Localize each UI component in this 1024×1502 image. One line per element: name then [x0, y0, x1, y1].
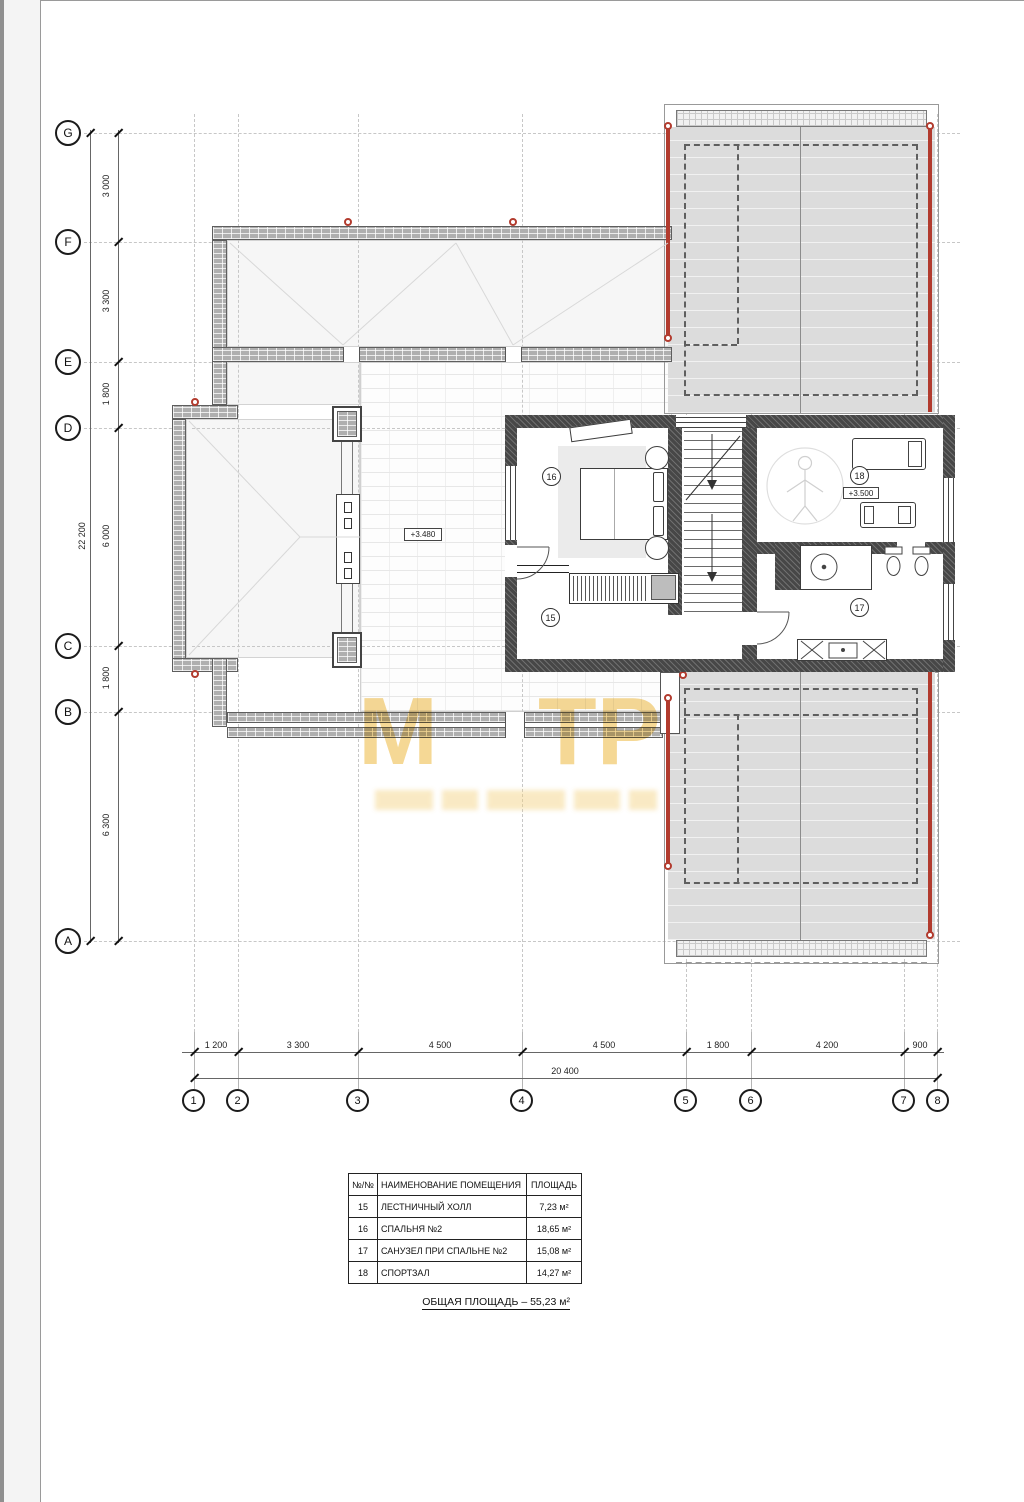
axis-col-2: 2 [226, 1089, 249, 1112]
axis-row-C: C [55, 633, 81, 659]
nightstand [645, 446, 669, 470]
total-area-value: ОБЩАЯ ПЛОЩАДЬ – 55,23 м² [422, 1296, 570, 1310]
watermark-blur-block [375, 790, 433, 810]
wall-stair-right-b [742, 645, 757, 659]
frame-line-top [40, 0, 1024, 1]
header-number: №/№ [349, 1174, 378, 1196]
wall-stair-right-a [742, 428, 757, 612]
roof-ridge-upper [800, 127, 801, 413]
dim-value: 4 500 [593, 1040, 616, 1050]
panel-cell [344, 552, 352, 563]
downspout-marker [664, 334, 672, 342]
panel-cell [344, 502, 352, 513]
wall-bottom [505, 659, 955, 672]
window-top [676, 415, 746, 428]
floor-plan-sheet: 16 15 18 17 +3.480 +3.500 МТР 3 000 3 30… [0, 0, 1024, 1502]
downspout-marker [664, 694, 672, 702]
axis-label: D [64, 421, 73, 435]
roof-dashed-wall [737, 144, 739, 344]
dim-bottom-1: 1 200 [186, 1040, 246, 1050]
dim-bottom-5: 1 800 [688, 1040, 748, 1050]
watermark-blur-block [574, 790, 620, 810]
dim-line-bottom-segments [182, 1052, 944, 1053]
downspout-marker [191, 398, 199, 406]
watermark-blur-block [487, 790, 565, 810]
axis-col-3: 3 [346, 1089, 369, 1112]
gutter-bar [666, 128, 670, 338]
eaves-dash-row [676, 962, 927, 964]
dim-value: 3 300 [101, 290, 111, 313]
dim-bottom-4: 4 500 [574, 1040, 634, 1050]
axis-row-B: B [55, 699, 81, 725]
axis-label: 8 [934, 1095, 940, 1107]
page-margin [4, 0, 40, 1502]
axis-col-6: 6 [739, 1089, 762, 1112]
gutter-bar [928, 128, 932, 412]
axis-label: B [64, 705, 72, 719]
roof-dashed-wall-outline [684, 144, 918, 396]
eaves-band-top [676, 110, 927, 127]
table-row: 17 САНУЗЕЛ ПРИ СПАЛЬНЕ №2 15,08 м² [349, 1240, 582, 1262]
pier-connector-lower [341, 584, 353, 632]
ext-line [358, 1032, 359, 1089]
cell-number: 16 [349, 1218, 378, 1240]
shower-enclosure [800, 545, 872, 590]
grid-col-2-overlay [238, 240, 239, 712]
wall-band-left-lower [212, 658, 227, 727]
axis-label: 1 [190, 1095, 196, 1107]
room-number-hall: 15 [541, 608, 560, 627]
wall-gym-bath-b [925, 542, 943, 554]
roof-plane-bay [186, 419, 360, 658]
axis-label: 4 [518, 1095, 524, 1107]
bike-wheel [898, 506, 911, 524]
roof-ridge-lower [800, 672, 801, 940]
wall-band-row-e [212, 347, 672, 362]
window-bedroom [505, 466, 517, 540]
panel-cell [344, 518, 352, 529]
eaves-band-bottom [676, 940, 927, 957]
dim-value: 3 000 [101, 175, 111, 198]
window-bath [943, 584, 955, 640]
downspout-marker [191, 670, 199, 678]
room-number-label: 18 [854, 471, 864, 481]
bay-wall-left [172, 419, 186, 672]
bike-seat [864, 506, 874, 524]
watermark-letters: ТР [538, 678, 661, 785]
level-mark-gym: +3.500 [843, 487, 879, 499]
chimney-box [660, 672, 680, 734]
axis-label: A [64, 934, 72, 948]
dim-left-2: 3 300 [101, 266, 111, 336]
vanity [797, 639, 887, 661]
dim-value: 1 800 [101, 667, 111, 690]
dim-bottom-total: 20 400 [535, 1066, 595, 1076]
axis-col-1: 1 [182, 1089, 205, 1112]
wardrobe-cabinet [651, 575, 676, 600]
room-number-label: 17 [854, 603, 864, 613]
dim-bottom-3: 4 500 [410, 1040, 470, 1050]
axis-row-G: G [55, 120, 81, 146]
bed-pillow [653, 506, 664, 536]
header-room-name: НАИМЕНОВАНИЕ ПОМЕЩЕНИЯ [378, 1174, 527, 1196]
dim-value: 22 200 [77, 522, 87, 550]
axis-col-5: 5 [674, 1089, 697, 1112]
room-number-bedroom: 16 [542, 467, 561, 486]
room-number-gym: 18 [850, 466, 869, 485]
dim-value: 1 200 [205, 1040, 228, 1050]
axis-row-E: E [55, 349, 81, 375]
dim-left-4: 6 000 [101, 501, 111, 571]
cell-number: 17 [349, 1240, 378, 1262]
ext-line [751, 1032, 752, 1089]
cell-area: 14,27 м² [527, 1262, 582, 1284]
room-number-bath: 17 [850, 598, 869, 617]
level-value: +3.480 [411, 530, 436, 539]
level-value: +3.500 [849, 489, 874, 498]
roof-plane-upper-ext [227, 362, 360, 405]
bay-wall-top [172, 405, 238, 419]
header-area: ПЛОЩАДЬ [527, 1174, 582, 1196]
dim-left-6: 6 300 [101, 790, 111, 860]
downspout-marker [926, 122, 934, 130]
gutter-bar [928, 672, 932, 935]
cell-room-name: СПАЛЬНЯ №2 [378, 1218, 527, 1240]
axis-label: E [64, 355, 72, 369]
bay-wall-bottom [172, 658, 238, 672]
bed-pillow [653, 472, 664, 502]
pier-box-bottom-core [337, 637, 357, 663]
dim-bottom-7: 900 [900, 1040, 940, 1050]
watermark-subline [375, 790, 657, 810]
frame-line-left [40, 0, 41, 1502]
dim-left-total: 22 200 [77, 501, 87, 571]
level-mark-terrace: +3.480 [404, 528, 442, 541]
dim-left-5: 1 800 [101, 643, 111, 713]
pier-gap [505, 347, 522, 362]
pier-box-top-core [337, 411, 357, 437]
axis-label: 2 [234, 1095, 240, 1107]
axis-label: G [63, 126, 72, 140]
wall-hall-bedroom [517, 565, 569, 573]
cell-number: 15 [349, 1196, 378, 1218]
wardrobe-hangers [573, 576, 649, 601]
wall-band-top [212, 226, 672, 240]
axis-col-4: 4 [510, 1089, 533, 1112]
watermark-blur-block [442, 790, 478, 810]
downspout-marker [664, 122, 672, 130]
door-opening-hall [505, 545, 517, 577]
dim-value: 6 000 [101, 525, 111, 548]
axis-label: C [64, 639, 73, 653]
room-number-label: 15 [545, 613, 555, 623]
watermark-letter: М [358, 678, 438, 785]
cell-area: 7,23 м² [527, 1196, 582, 1218]
cell-room-name: САНУЗЕЛ ПРИ СПАЛЬНЕ №2 [378, 1240, 527, 1262]
axis-label: 7 [900, 1095, 906, 1107]
cell-area: 15,08 м² [527, 1240, 582, 1262]
dim-value: 1 800 [101, 383, 111, 406]
nightstand [645, 536, 669, 560]
dim-line-left-total [90, 130, 91, 943]
dim-bottom-6: 4 200 [797, 1040, 857, 1050]
total-area-note: ОБЩАЯ ПЛОЩАДЬ – 55,23 м² [348, 1296, 570, 1308]
axis-col-8: 8 [926, 1089, 949, 1112]
dim-value: 4 500 [429, 1040, 452, 1050]
roof-plane-upper [227, 240, 672, 347]
dim-value: 3 300 [287, 1040, 310, 1050]
axis-label: 6 [747, 1095, 753, 1107]
watermark-logo: МТР [358, 684, 661, 780]
dim-value: 1 800 [707, 1040, 730, 1050]
pier-gap [343, 347, 360, 362]
axis-label: F [64, 235, 71, 249]
dim-value: 20 400 [551, 1066, 579, 1076]
bed-blanket-line [614, 469, 615, 539]
dim-bottom-2: 3 300 [268, 1040, 328, 1050]
room-legend-table: №/№ НАИМЕНОВАНИЕ ПОМЕЩЕНИЯ ПЛОЩАДЬ 15 ЛЕ… [348, 1173, 582, 1284]
gutter-bar [666, 700, 670, 866]
ext-line [686, 1032, 687, 1089]
table-header-row: №/№ НАИМЕНОВАНИЕ ПОМЕЩЕНИЯ ПЛОЩАДЬ [349, 1174, 582, 1196]
dim-left-1: 3 000 [101, 151, 111, 221]
wall-band-left-upper [212, 240, 227, 405]
treadmill-console [908, 441, 922, 467]
roof-dashed-wall [684, 714, 918, 716]
dim-value: 6 300 [101, 814, 111, 837]
downspout-marker [926, 931, 934, 939]
roof-dashed-wall [684, 344, 737, 346]
staircase [684, 430, 742, 612]
table-row: 18 СПОРТЗАЛ 14,27 м² [349, 1262, 582, 1284]
dim-line-bottom-total [194, 1078, 937, 1079]
dim-left-3: 1 800 [101, 359, 111, 429]
cell-room-name: ЛЕСТНИЧНЫЙ ХОЛЛ [378, 1196, 527, 1218]
dim-value: 4 200 [816, 1040, 839, 1050]
table-row: 15 ЛЕСТНИЧНЫЙ ХОЛЛ 7,23 м² [349, 1196, 582, 1218]
axis-row-F: F [55, 229, 81, 255]
watermark-blur-block [629, 790, 657, 810]
downspout-marker [679, 671, 687, 679]
dim-value: 900 [912, 1040, 927, 1050]
axis-row-D: D [55, 415, 81, 441]
axis-label: 5 [682, 1095, 688, 1107]
table-row: 16 СПАЛЬНЯ №2 18,65 м² [349, 1218, 582, 1240]
window-gym [943, 478, 955, 542]
downspout-marker [344, 218, 352, 226]
panel-cell [344, 568, 352, 579]
axis-row-A: A [55, 928, 81, 954]
wall-left [505, 415, 517, 672]
downspout-marker [509, 218, 517, 226]
pier-connector-upper [341, 442, 353, 494]
axis-col-7: 7 [892, 1089, 915, 1112]
downspout-marker [664, 862, 672, 870]
wall-shower-block [775, 542, 800, 590]
dim-line-left-segments [118, 130, 119, 943]
axis-label: 3 [354, 1095, 360, 1107]
ext-line [522, 1032, 523, 1089]
roof-dashed-wall-outline [684, 688, 918, 884]
cell-area: 18,65 м² [527, 1218, 582, 1240]
roof-dashed-wall [737, 714, 739, 884]
cell-room-name: СПОРТЗАЛ [378, 1262, 527, 1284]
cell-number: 18 [349, 1262, 378, 1284]
room-number-label: 16 [546, 472, 556, 482]
